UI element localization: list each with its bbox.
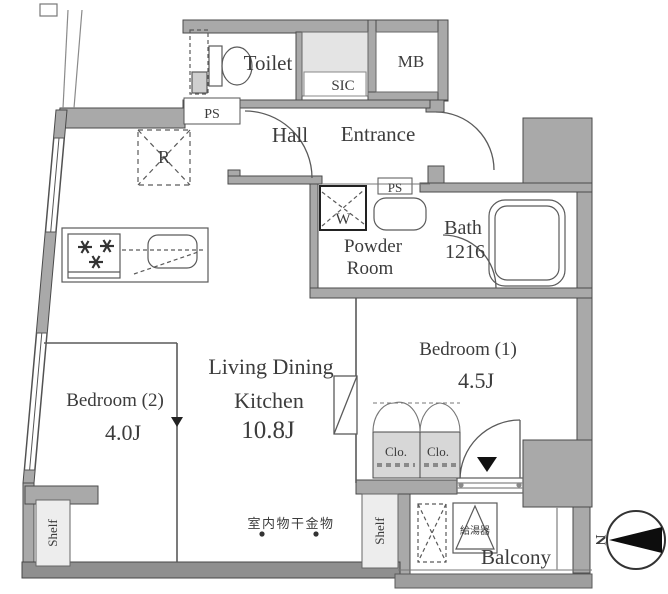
entrance-label: Entrance [341, 122, 416, 146]
wall-bottom-band [22, 562, 400, 578]
wall-right [577, 192, 592, 440]
closets [373, 402, 460, 478]
balcony-door-arc [460, 420, 520, 480]
corner-marker [40, 4, 57, 16]
compass: N [592, 511, 665, 569]
bathtub-inner [495, 206, 559, 280]
closet-door-arc [394, 402, 420, 432]
wall-topleft-band [57, 108, 185, 128]
wall-mb-right [438, 20, 448, 100]
floor-plan: N Toilet SIC MB PS Hall Entrance PS W Po… [0, 0, 668, 594]
closet-door-arc [420, 403, 440, 432]
indoor-drying-label: 室内物干金物 [247, 516, 334, 531]
ldk-size-label: 10.8J [241, 417, 295, 444]
property-line [63, 10, 68, 108]
bedroom2-size-label: 4.0J [105, 420, 142, 445]
wall-above-bath [420, 183, 592, 192]
wall-bottomright-mass [523, 440, 592, 507]
wall-below-bath [310, 288, 592, 298]
closet-door-arc [373, 403, 394, 432]
ps-top-label: PS [204, 107, 220, 122]
balcony-door-threshold [457, 478, 523, 493]
bath-label: Bath [444, 217, 482, 239]
balcony-label: Balcony [481, 545, 551, 569]
property-line [74, 10, 82, 108]
bedroom1-size-label: 4.5J [458, 368, 495, 393]
entrance-door-arc [436, 112, 494, 170]
ldk-label-2: Kitchen [234, 388, 304, 413]
wall-balcony-right [573, 507, 590, 573]
wall-top [183, 20, 448, 33]
bathtub [489, 200, 565, 286]
toilet-cabinet [192, 72, 207, 93]
wall-toilet-sic [296, 32, 302, 104]
bathtub-outer [489, 200, 565, 286]
drying-hook-dot [313, 531, 318, 536]
ldk-label-1: Living Dining [208, 354, 333, 379]
closet-door-arc [440, 403, 460, 432]
ps-mid-label: PS [388, 180, 402, 195]
refrigerator-label: R [158, 147, 170, 167]
powder-label-2: Room [347, 258, 394, 279]
threshold-end [458, 482, 463, 487]
toilet-label: Toilet [244, 51, 293, 75]
wall-entrance-jamb-bottom [428, 166, 444, 184]
sliding-door-marker [171, 417, 183, 427]
bedroom2-label: Bedroom (2) [66, 390, 164, 411]
bedroom1-label: Bedroom (1) [419, 339, 517, 360]
powder-label-1: Powder [344, 236, 403, 257]
threshold-end [516, 482, 521, 487]
walls [23, 20, 592, 578]
powder-sink [374, 198, 426, 230]
wall-powder-left [310, 184, 318, 298]
property-lines [40, 4, 82, 108]
kitchen-counter [62, 228, 208, 282]
closet2-label: Clo. [427, 444, 449, 459]
hall-label: Hall [272, 123, 308, 147]
shelf-left-label: Shelf [45, 519, 60, 547]
shelf-right-label: Shelf [372, 517, 387, 545]
wall-topright-mass [523, 118, 592, 192]
balcony-direction-triangle [477, 457, 497, 472]
balcony-outer-band [395, 574, 592, 588]
wall-hall-bottom [228, 176, 322, 184]
sic-label: SIC [331, 78, 354, 94]
mb-label: MB [398, 52, 424, 71]
toilet-tank [209, 46, 222, 86]
compass-north-label: N [592, 535, 608, 546]
wall-above-balcony-door [356, 480, 457, 494]
wall-mb-left [368, 20, 376, 100]
washer-label: W [335, 211, 351, 228]
bath-size-label: 1216 [445, 241, 485, 263]
closet1-label: Clo. [385, 444, 407, 459]
water-heater-label: 給湯器 [460, 524, 490, 537]
drying-hook-dot [259, 531, 264, 536]
